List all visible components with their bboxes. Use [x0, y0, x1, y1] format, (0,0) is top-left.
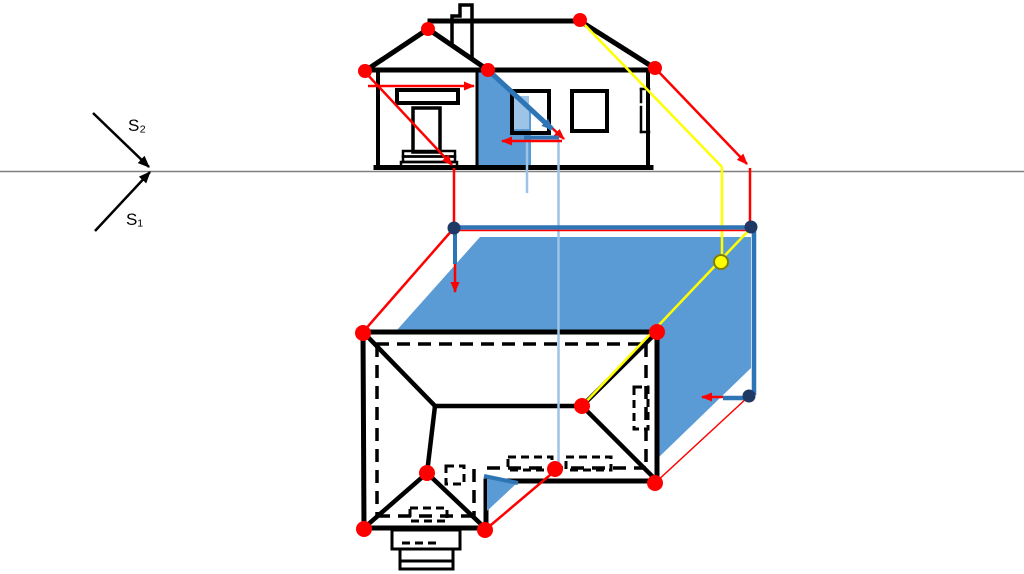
point-left-eave — [358, 64, 372, 78]
plan-porch-steps — [392, 530, 460, 569]
yellow-ray-elevation — [581, 21, 722, 167]
point-plan-bottomright — [647, 475, 663, 491]
point-shadow-corner — [743, 390, 756, 403]
point-plan-wing-left — [356, 521, 372, 537]
point-ridge-shadow-yellow — [714, 255, 728, 269]
window-2 — [572, 91, 607, 131]
point-shadow-left — [448, 222, 461, 235]
point-plan-topright — [649, 324, 665, 340]
slide-canvas: S₂ S₁ — [0, 0, 1024, 574]
front-door — [413, 108, 440, 152]
point-plan-wall — [547, 461, 563, 477]
shadow-construction-drawing: S₂ S₁ — [0, 0, 1024, 574]
gable-left-slope — [365, 29, 428, 71]
ray-s1-label: S₁ — [126, 210, 143, 229]
point-shadow-topright — [745, 221, 758, 234]
ray-s2-label: S₂ — [128, 116, 146, 135]
wing-window — [397, 90, 458, 103]
gable-right-slope — [428, 29, 488, 70]
right-hip-slope — [580, 21, 656, 69]
point-right-eave — [648, 61, 662, 75]
point-ridge-end — [573, 13, 587, 27]
point-plan-topleft — [355, 325, 371, 341]
plan-roof-outline — [363, 332, 657, 528]
point-gable-apex — [421, 22, 435, 36]
point-junction-eave — [481, 63, 495, 77]
point-plan-wing-right — [477, 522, 493, 538]
point-plan-wing-apex — [419, 465, 435, 481]
red-ray-right-eave — [655, 68, 747, 164]
point-plan-ridge-end — [574, 398, 590, 414]
plan-view — [363, 237, 751, 569]
